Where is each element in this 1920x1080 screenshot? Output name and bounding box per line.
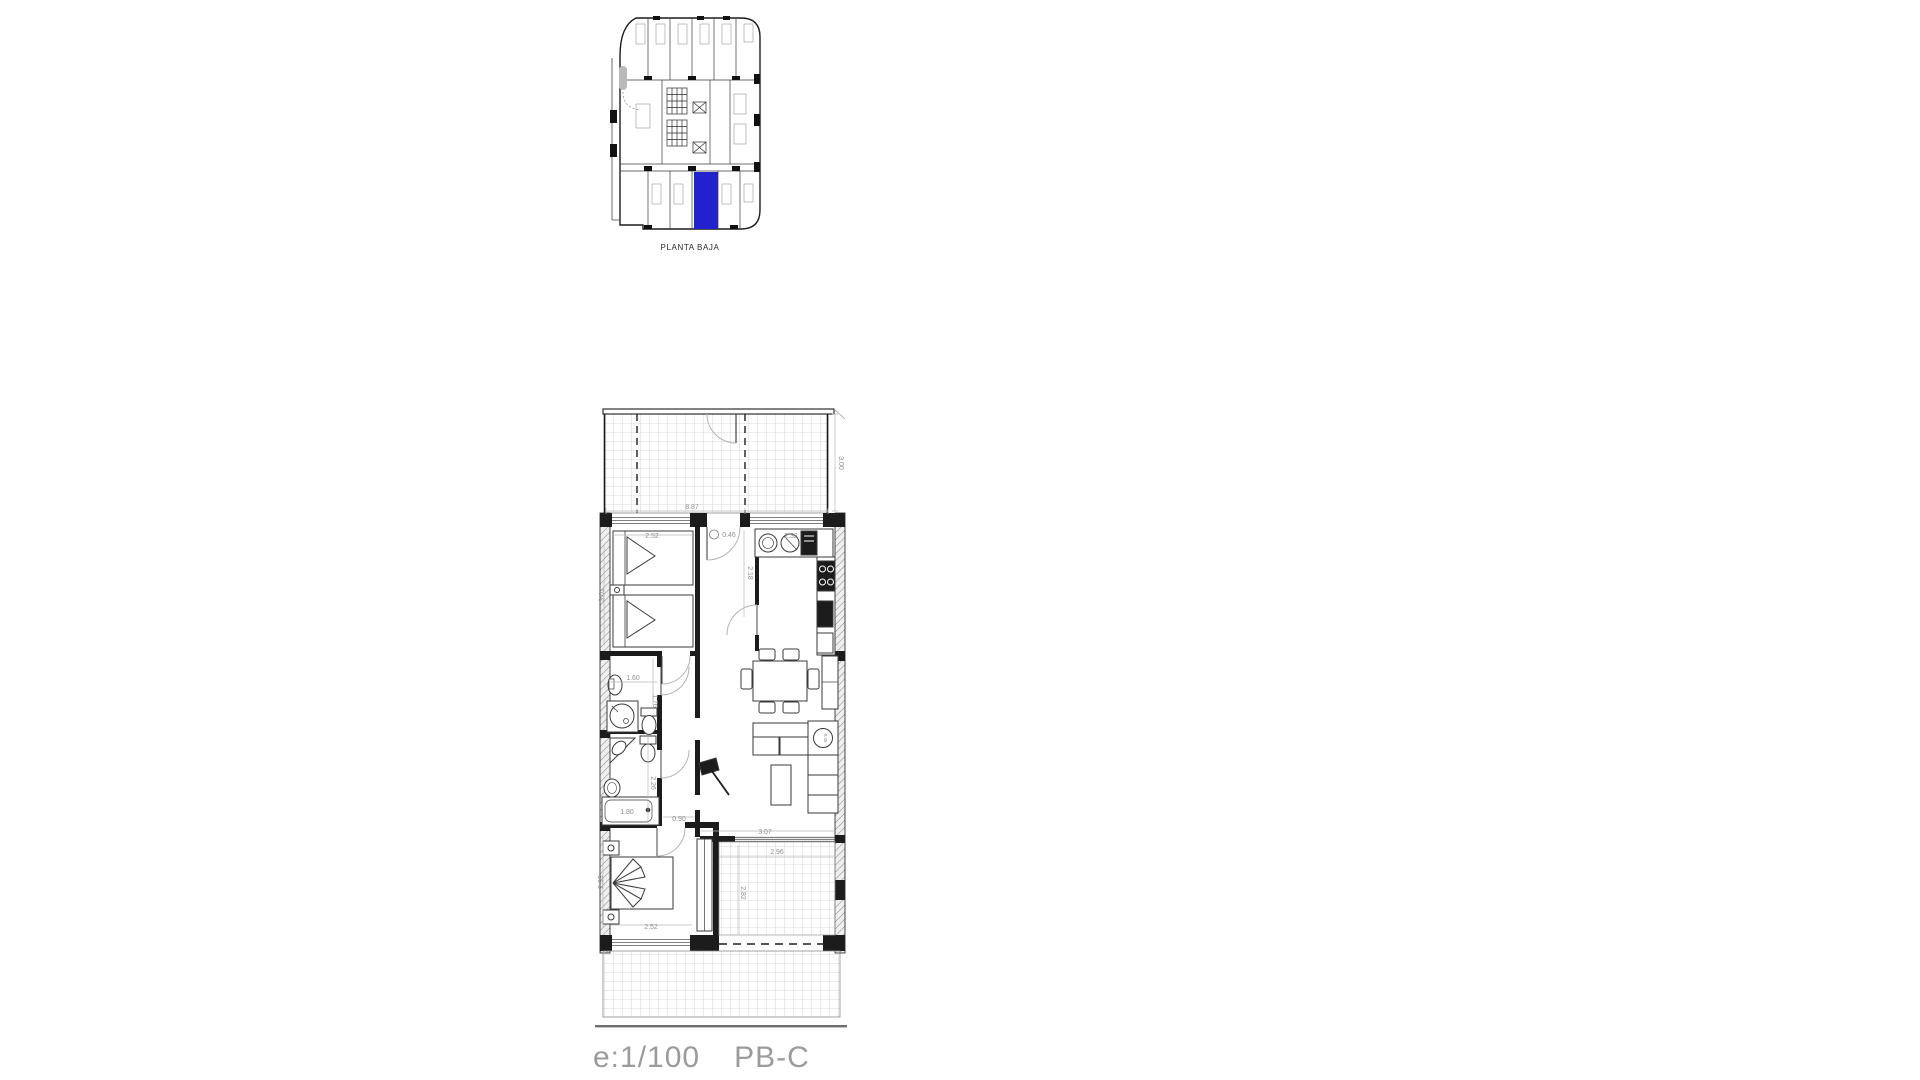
- side-table-icon: [814, 729, 833, 748]
- chair-icon: [783, 702, 799, 713]
- chair-icon: [808, 669, 819, 689]
- dim-terrace-width: 8.87: [685, 504, 699, 511]
- dim-bath1-width: 1.60: [626, 675, 640, 682]
- bath2-door-arc: [661, 750, 689, 778]
- site-plan-title: PLANTA BAJA: [610, 243, 770, 252]
- plan-code-label: PB-C: [734, 1041, 810, 1074]
- dining-table-icon: [753, 661, 807, 701]
- kitchen-door-arc: [727, 605, 757, 635]
- lamp-icon: [608, 845, 614, 851]
- scale-label: e:1/100: [593, 1041, 700, 1074]
- elevator-icon: [693, 102, 706, 153]
- page: PLANTA BAJA: [0, 0, 1920, 1080]
- coffee-table-icon: [771, 765, 791, 805]
- dim-side-table: 0.45: [823, 734, 828, 743]
- dim-bedroom2-depth: 2.99: [598, 875, 605, 889]
- bedroom-1: [610, 531, 693, 647]
- dim-bath2-depth: 2.26: [649, 776, 656, 790]
- bedroom2-door-arc: [657, 828, 685, 856]
- chair-icon: [741, 669, 752, 689]
- cupboard-icon: [822, 656, 838, 709]
- stairs-icon: [667, 88, 687, 146]
- dim-bedroom2-width: 2.52: [644, 924, 658, 931]
- dim-terrace-depth: 3.00: [837, 456, 844, 470]
- terrace-bottom: [603, 951, 840, 1017]
- dim-hall-depth: 2.18: [746, 566, 753, 580]
- dim-bedroom1-width: 2.52: [645, 533, 659, 540]
- dim-closet-width: 0.46: [722, 532, 736, 539]
- terrace-top: [603, 409, 845, 513]
- floor-plan: 8.87 3.00 2.52 3.01 0.46 2.18 2.32 1.60 …: [595, 405, 847, 1035]
- site-left-strip: [612, 58, 620, 220]
- dim-terrace-inner-width: 2.96: [770, 849, 784, 856]
- tv-icon: [699, 758, 719, 775]
- dim-bathtub-length: 1.80: [620, 809, 634, 816]
- dim-corridor-width: 0.90: [672, 816, 686, 823]
- dim-living-width: 3.07: [758, 829, 772, 836]
- water-heater-icon: [710, 530, 719, 539]
- lamp-icon: [608, 914, 614, 920]
- stove-icon: [817, 561, 835, 591]
- ramp-path: [623, 92, 640, 110]
- dim-bedroom1-depth: 3.01: [599, 588, 606, 602]
- dim-bath1-depth: 1.76: [651, 694, 658, 708]
- living-area: [699, 721, 838, 813]
- bathroom-1: [607, 675, 657, 735]
- dining-area: [741, 649, 838, 713]
- sofa-icon: [808, 755, 838, 775]
- kitchen: [755, 529, 835, 655]
- appliance-icon: [801, 531, 817, 555]
- lamp-icon: [615, 588, 620, 593]
- ramp-icon: [619, 66, 627, 90]
- site-partitions: [620, 18, 760, 229]
- chair-icon: [783, 649, 799, 660]
- building-outline: [620, 18, 760, 229]
- site-plan-highlighted-unit: [694, 172, 718, 229]
- cabinet-icon: [817, 601, 833, 627]
- toilet-icon: [641, 708, 657, 716]
- fridge-icon: [817, 633, 833, 653]
- chair-icon: [759, 702, 775, 713]
- plan-footer: e:1/100PB-C: [593, 1041, 810, 1075]
- sofa-icon: [753, 723, 808, 737]
- section-line: [595, 1025, 847, 1027]
- bed-icon: [611, 857, 673, 909]
- dim-kitchen-width: 2.32: [784, 533, 798, 540]
- dim-terrace-inner-depth: 2.82: [739, 886, 746, 900]
- chair-icon: [759, 649, 775, 660]
- site-plan: [610, 14, 770, 240]
